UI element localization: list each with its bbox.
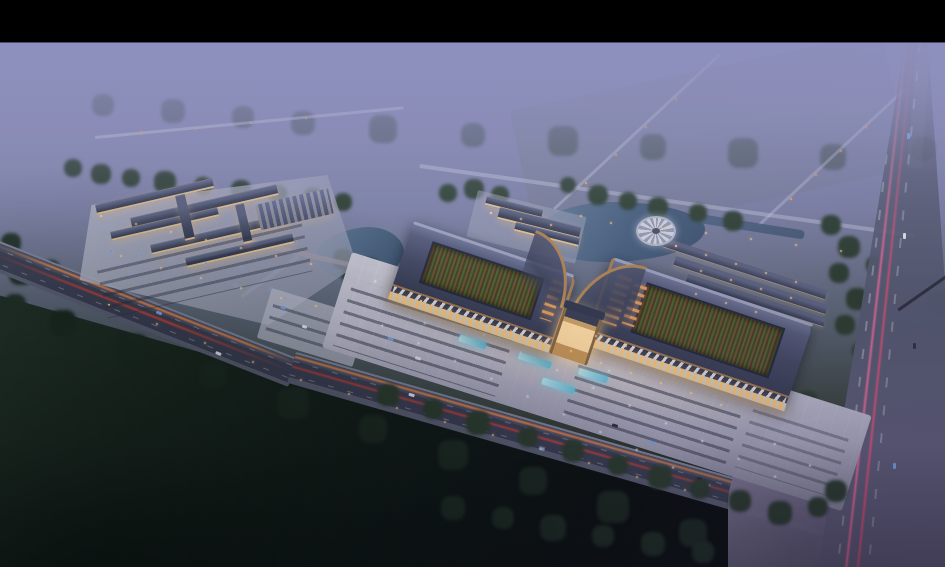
warm-lights-main-complex [420,300,422,302]
aerial-dusk-rendering [0,0,945,567]
car [893,463,896,469]
car [913,343,916,349]
tree-grove-site-north [70,165,76,171]
tree-grove-pond-north [445,190,451,196]
circular-plaza [636,216,676,246]
streetlight-dots-mist-3 [790,198,792,200]
plaza-parking-rows [735,400,851,497]
tree-grove-plaza-south [385,392,391,398]
car [408,393,415,398]
faint-road-west [95,106,404,139]
parked-cars-dots [110,250,112,252]
car [696,476,703,481]
streetlight-dots-mist-1 [140,132,142,134]
plaza-cool-dots [374,280,377,283]
car [903,233,906,239]
circular-plaza-center [652,228,660,234]
car [538,447,545,452]
far-forest-band [300,120,306,126]
tree-grove-east [828,222,834,228]
warm-lights-north [490,212,492,214]
fountain-pool [541,377,576,394]
car [907,133,910,139]
letterbox-top-bar [0,0,945,43]
tree-grove-bottom [450,505,456,511]
fountain-pool [518,352,553,369]
rendering-stage [0,0,945,567]
warm-lights-villa-rows [675,245,677,247]
warm-lights-west-campus [100,215,102,217]
